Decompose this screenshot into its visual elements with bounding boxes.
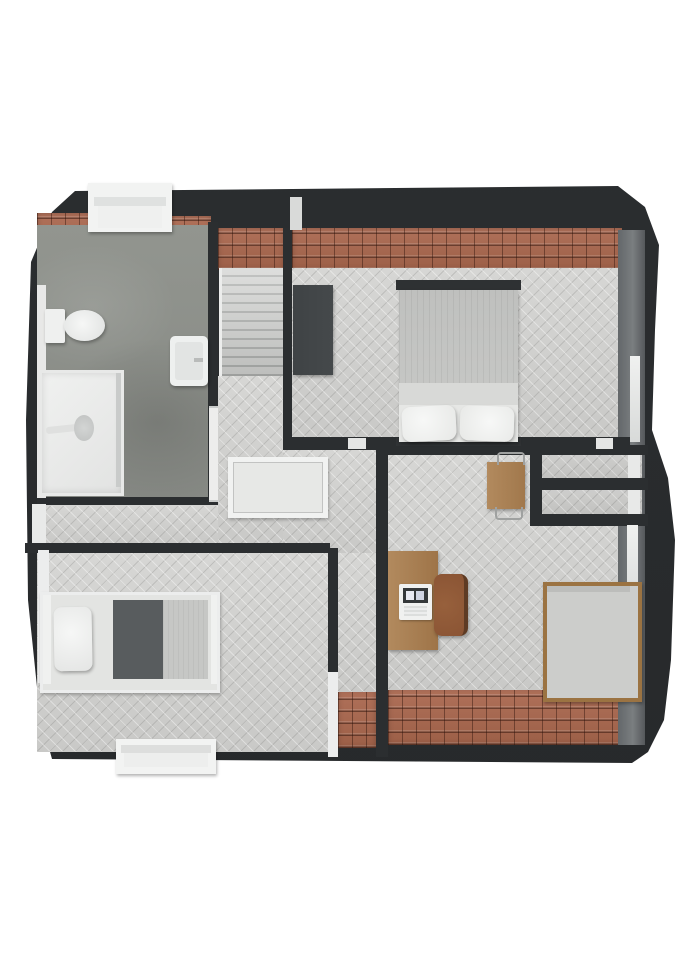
threshold-bedroom-door — [348, 438, 366, 449]
corridor-right-wall — [376, 448, 388, 757]
floor-plan — [0, 0, 679, 960]
single-bed-duvet — [163, 600, 208, 679]
dormer-bottom-sill — [121, 745, 211, 753]
laptop-screen-window-2 — [416, 591, 424, 600]
shower-glass — [116, 373, 121, 487]
single-bed-right-topband — [547, 586, 630, 592]
storage-compartment-2-floor — [542, 490, 642, 514]
pillow-right — [459, 405, 514, 442]
threshold-closet-door — [596, 438, 613, 449]
dormer-top-glass — [98, 206, 162, 228]
roof-tiles-bottom-corridor — [338, 690, 376, 748]
roof-tiles-top-bedroom — [292, 228, 622, 270]
dormer-window-bottom — [116, 739, 216, 774]
window-right-bedroom — [630, 356, 640, 442]
shower-head — [74, 415, 94, 441]
bedroom-single-north-wall — [25, 543, 330, 553]
white-divider-strip — [328, 672, 338, 757]
stairs-bedroom-wall — [283, 228, 292, 448]
window-left-hallway — [32, 504, 46, 543]
wire-chair-bottom — [495, 507, 523, 520]
roof-tiles-top-stairs — [218, 228, 284, 270]
wire-chair-top — [497, 452, 525, 465]
single-bed-right — [543, 582, 642, 702]
storage-mid-bar — [542, 478, 648, 490]
storage-top-bar — [530, 445, 648, 455]
single-bed-footboard — [211, 595, 217, 684]
washbasin-faucet — [194, 358, 203, 362]
storage-compartment-1-floor — [542, 455, 642, 478]
staircase-treads — [219, 268, 288, 378]
hallway-strip-floor — [37, 503, 218, 543]
laptop — [399, 584, 432, 620]
stair-void-railing — [228, 457, 328, 518]
single-bed-pillow — [53, 607, 92, 672]
pillow-left — [401, 405, 457, 443]
single-bed-left — [40, 592, 220, 693]
single-bed-dark-blanket — [113, 600, 163, 679]
shower — [39, 370, 124, 496]
corridor-left-wall — [328, 548, 338, 672]
double-bed — [396, 280, 521, 446]
bathroom-door — [209, 406, 218, 502]
wardrobe — [293, 285, 333, 375]
laptop-screen-window-1 — [406, 591, 414, 600]
double-bed-fold — [399, 383, 518, 405]
laptop-screen — [403, 588, 428, 603]
laptop-keyboard — [404, 606, 427, 616]
side-table — [487, 462, 525, 509]
dormer-top-sill — [94, 197, 166, 206]
storage-left-bar — [530, 445, 542, 526]
toilet — [45, 307, 107, 345]
desk-chair — [434, 574, 468, 636]
dormer-bottom-glass — [124, 753, 208, 767]
bathroom-bottom-wall — [37, 497, 218, 505]
corridor-floor — [338, 553, 376, 692]
wall-end-cap — [290, 197, 302, 230]
single-bed-headboard — [43, 595, 51, 684]
washbasin — [170, 336, 208, 386]
toilet-bowl — [64, 310, 105, 341]
double-bed-footboard — [396, 280, 521, 290]
toilet-tank — [45, 309, 65, 343]
dormer-window-top — [88, 183, 172, 232]
